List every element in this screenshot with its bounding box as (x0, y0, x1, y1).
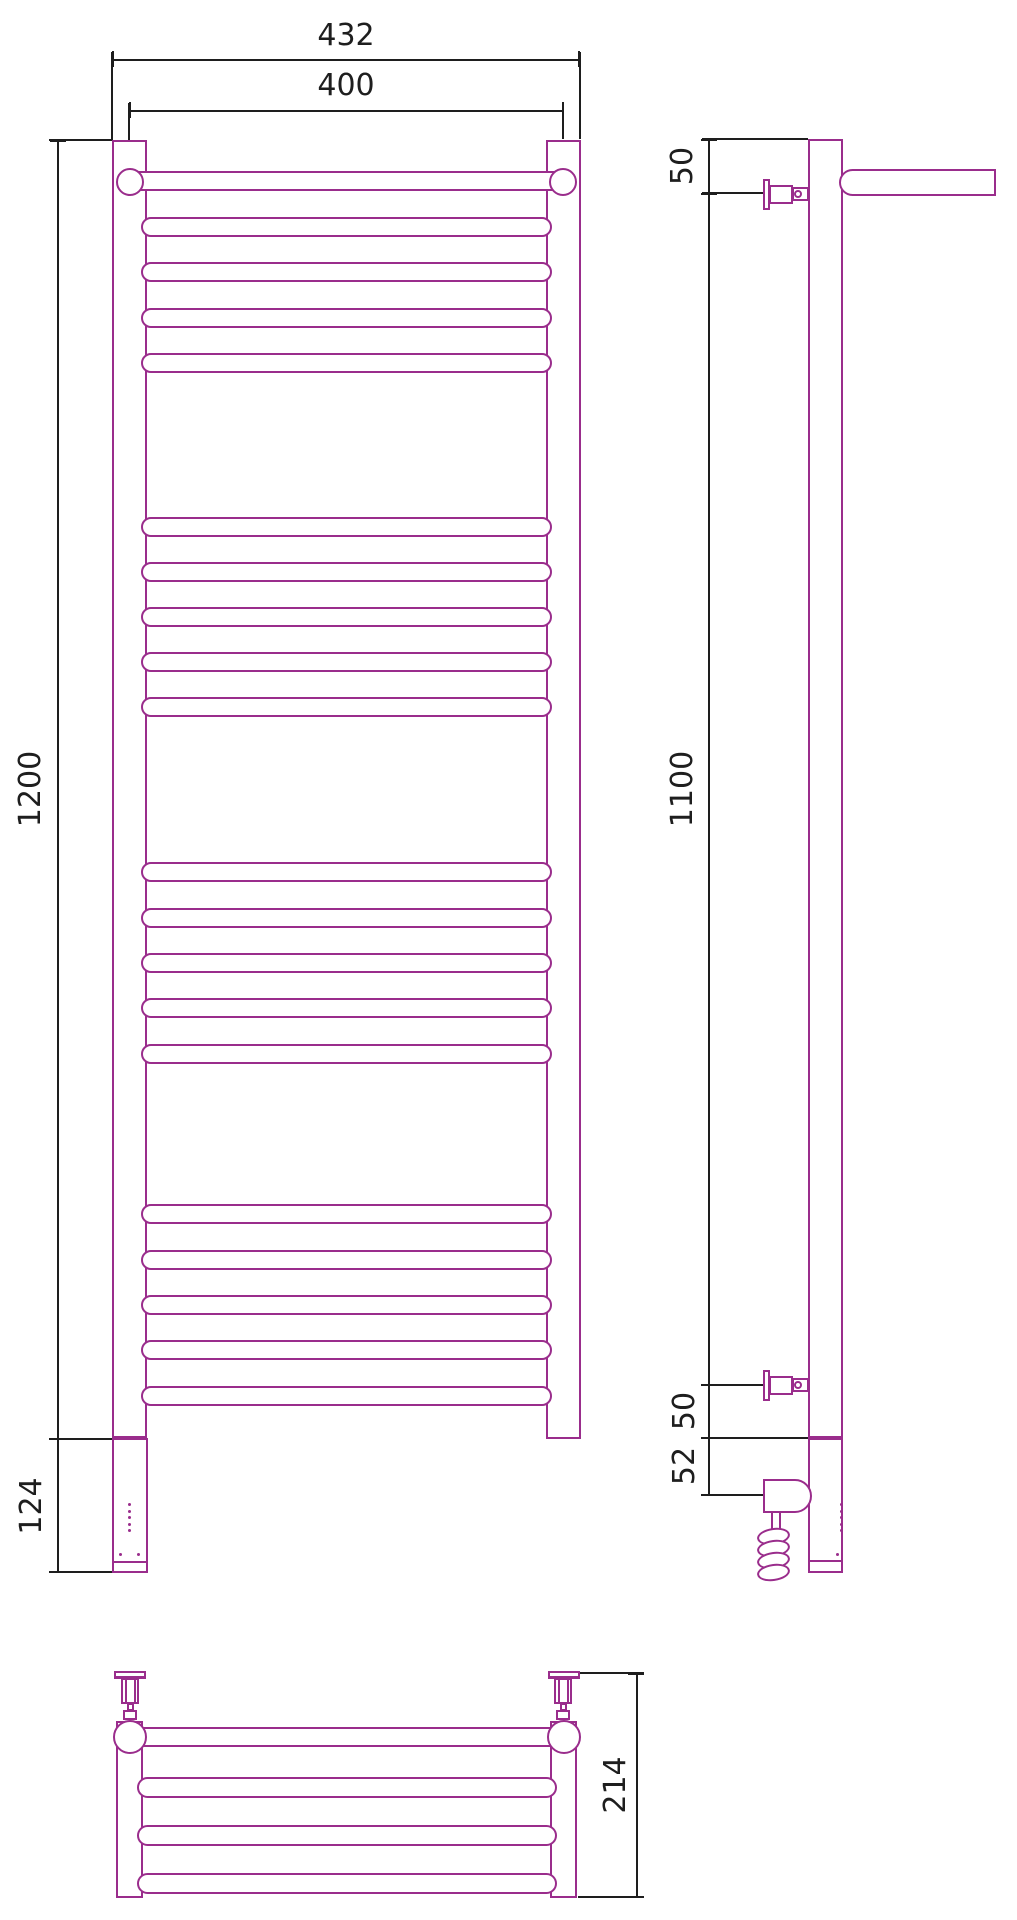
side-bottom-bracket-body (769, 1376, 793, 1395)
front-right-collector-tube (546, 140, 581, 1439)
dim-label-shelf-depth: 214 (600, 1735, 632, 1835)
screw-dot (137, 1553, 140, 1556)
front-rung (141, 1295, 552, 1315)
led-dot (840, 1529, 843, 1532)
ext-line-side-top (702, 138, 808, 140)
front-rung (141, 953, 552, 973)
front-rung (141, 1340, 552, 1360)
dim-line-side (708, 139, 710, 1495)
front-rung (141, 1250, 552, 1270)
side-thermostat-head (763, 1479, 812, 1513)
tick-side-4 (701, 1437, 717, 1439)
led-dot (128, 1510, 131, 1513)
dim-label-rail-spacing: 400 (296, 70, 396, 102)
dim-label-heater-axis-offset: 52 (669, 1416, 701, 1516)
front-rung (141, 1044, 552, 1064)
dim-label-bracket-span: 1100 (667, 739, 699, 839)
dim-line-214 (636, 1673, 638, 1898)
front-left-bracket-circle (116, 168, 144, 196)
tick-432-left (112, 51, 114, 67)
side-heater-dot (836, 1553, 839, 1556)
shelf-bar (137, 1777, 557, 1798)
dim-line-400 (129, 110, 563, 112)
tick-400-right (562, 102, 564, 118)
led-dot (840, 1510, 843, 1513)
dim-label-housing-height: 124 (16, 1456, 48, 1556)
top-view-main-rail (140, 1727, 553, 1747)
tick-1200-top (50, 140, 66, 142)
front-rung (141, 262, 552, 282)
front-rung (141, 607, 552, 627)
side-top-bracket-body (769, 185, 793, 204)
led-dot (128, 1523, 131, 1526)
side-top-bracket-screw-head (794, 190, 802, 198)
dim-line-432 (112, 59, 580, 61)
dim-label-overall-width: 432 (296, 20, 396, 52)
led-dot (840, 1516, 843, 1519)
front-right-bracket-circle (549, 168, 577, 196)
led-dot (128, 1516, 131, 1519)
front-rung (141, 697, 552, 717)
front-rung (141, 353, 552, 373)
top-view-right-bracket-washer (556, 1710, 570, 1720)
top-view-left-bracket-body-inner (125, 1678, 136, 1704)
front-rung (141, 562, 552, 582)
tick-side-1 (701, 139, 717, 141)
dim-line-1200 (57, 140, 59, 1439)
front-rung (141, 908, 552, 928)
front-rung (141, 862, 552, 882)
dim-label-overall-height: 1200 (15, 739, 47, 839)
top-view-right-tube-section (547, 1720, 581, 1754)
led-dot (840, 1503, 843, 1506)
side-shelf-rail (839, 169, 996, 196)
front-rung (141, 1386, 552, 1406)
front-heater-housing-cap-line (112, 1561, 148, 1563)
side-bottom-bracket-screw-head (794, 1381, 802, 1389)
screw-dot (119, 1553, 122, 1556)
front-rung (141, 998, 552, 1018)
tick-side-2 (701, 193, 717, 195)
front-top-rung (138, 171, 556, 191)
tick-side-5 (701, 1494, 717, 1496)
shelf-bar (137, 1825, 557, 1846)
front-rung (141, 652, 552, 672)
tick-side-3 (701, 1384, 717, 1386)
front-rung (141, 1204, 552, 1224)
tick-214-bottom (628, 1896, 644, 1898)
top-view-left-bracket-washer (123, 1710, 137, 1720)
dim-label-top-bracket-offset: 50 (667, 116, 699, 216)
led-dot (840, 1523, 843, 1526)
led-dot (128, 1529, 131, 1532)
shelf-bar (137, 1873, 557, 1894)
side-heater-housing-cap-line (808, 1560, 843, 1562)
tick-432-right (578, 51, 580, 67)
led-dot (128, 1503, 131, 1506)
dim-line-124 (57, 1439, 59, 1573)
front-rung (141, 517, 552, 537)
front-rung (141, 217, 552, 237)
drawing-canvas: 432 400 1200 124 50 1100 50 (0, 0, 1017, 1920)
ext-line-124-bottom (49, 1571, 112, 1573)
front-rung (141, 308, 552, 328)
top-view-left-tube-section (113, 1720, 147, 1754)
tick-400-left (129, 102, 131, 118)
side-collector-tube (808, 139, 843, 1438)
front-left-collector-tube (112, 140, 147, 1438)
tick-214-top (628, 1673, 644, 1675)
top-view-right-bracket-body-inner (558, 1678, 569, 1704)
